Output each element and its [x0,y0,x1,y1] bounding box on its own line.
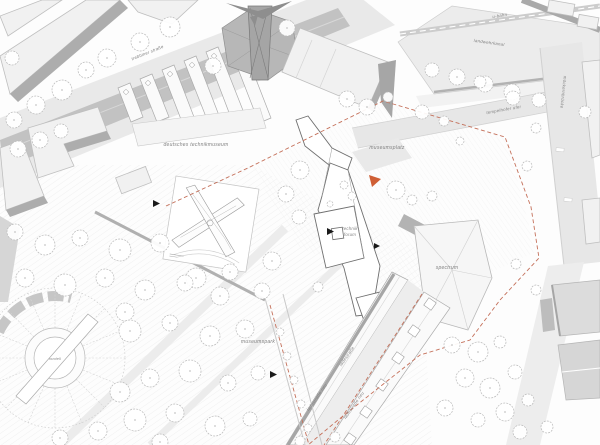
tree [531,123,541,133]
tree [427,191,437,201]
tree-trunk-dot [35,104,37,106]
tree [283,352,291,360]
label-rondell: rondell [49,357,61,361]
tree-trunk-dot [169,26,171,28]
label-forum: forum [344,232,356,237]
tree-trunk-dot [395,189,397,191]
tree-trunk-dot [79,237,81,239]
label-deutsches-technikmuseum: deutsches technikmuseum [164,142,229,148]
tree [340,181,348,189]
tree-trunk-dot [14,231,16,233]
tree [415,105,429,119]
tree [456,137,464,145]
tree-trunk-dot [366,106,368,108]
tree-trunk-dot [119,391,121,393]
tree [330,432,340,442]
label-spectrum: spectrum [436,265,459,271]
tree-trunk-dot [444,407,446,409]
tree [511,259,521,269]
tree-trunk-dot [17,148,19,150]
tree-trunk-dot [299,169,301,171]
tree-trunk-dot [104,277,106,279]
tree [304,424,312,432]
tree-trunk-dot [119,249,121,251]
tree [506,91,520,105]
tree-trunk-dot [134,419,136,421]
tree-trunk-dot [189,370,191,372]
tree [532,93,546,107]
tree [471,413,485,427]
tree-trunk-dot [39,139,41,141]
tree [513,425,527,439]
tree-trunk-dot [244,328,246,330]
tree [494,336,506,348]
tree-trunk-dot [44,244,46,246]
tree-trunk-dot [214,425,216,427]
tree-trunk-dot [229,271,231,273]
tree-trunk-dot [464,377,466,379]
tree [522,161,532,171]
tree-trunk-dot [139,41,141,43]
tree-trunk-dot [195,277,197,279]
tree [541,421,553,433]
tree [439,116,449,126]
site-plan-canvas: trebbiner straße deutsches technikmuseum… [0,0,600,445]
tree [243,412,257,426]
tree [295,436,305,445]
tree-trunk-dot [286,27,288,29]
tree-trunk-dot [144,289,146,291]
tree [54,124,68,138]
tree [508,365,522,379]
label-museumspark: museumspark [241,339,275,345]
tree [327,201,333,207]
tree [313,282,323,292]
tree-trunk-dot [159,242,161,244]
tree-trunk-dot [451,344,453,346]
tree [383,92,393,102]
tree-trunk-dot [184,282,186,284]
tree-trunk-dot [13,119,15,121]
tree-trunk-dot [285,193,287,195]
tree [297,400,305,408]
tree-trunk-dot [159,441,161,443]
tree [531,285,541,295]
tree-trunk-dot [456,76,458,78]
tree [407,195,417,205]
tree-trunk-dot [106,57,108,59]
tree-trunk-dot [97,430,99,432]
tree [522,394,534,406]
tree [579,106,591,118]
tree-trunk-dot [271,260,273,262]
label-technik: technik [342,226,358,231]
tree-trunk-dot [504,411,506,413]
inset-detail-panel [163,176,259,272]
tree [425,63,439,77]
tree-trunk-dot [129,330,131,332]
tree [290,376,298,384]
tree-trunk-dot [59,437,61,439]
tree-trunk-dot [169,322,171,324]
tree-trunk-dot [24,277,26,279]
tree-trunk-dot [64,284,66,286]
tree-trunk-dot [489,387,491,389]
tree-trunk-dot [149,377,151,379]
tree-trunk-dot [85,69,87,71]
tree [251,366,265,380]
tree-trunk-dot [61,89,63,91]
tree [474,76,486,88]
tree-trunk-dot [219,295,221,297]
tree [348,192,356,200]
tree-trunk-dot [261,290,263,292]
tree-trunk-dot [212,65,214,67]
tree-trunk-dot [124,311,126,313]
tree-trunk-dot [209,335,211,337]
tree-trunk-dot [174,412,176,414]
site-plan: trebbiner straße deutsches technikmuseum… [0,0,600,445]
tree-trunk-dot [227,382,229,384]
tree [5,51,19,65]
tree-trunk-dot [346,98,348,100]
tree [292,210,306,224]
label-museumsplatz: museumsplatz [369,145,404,151]
tree-trunk-dot [477,351,479,353]
tree [276,328,284,336]
